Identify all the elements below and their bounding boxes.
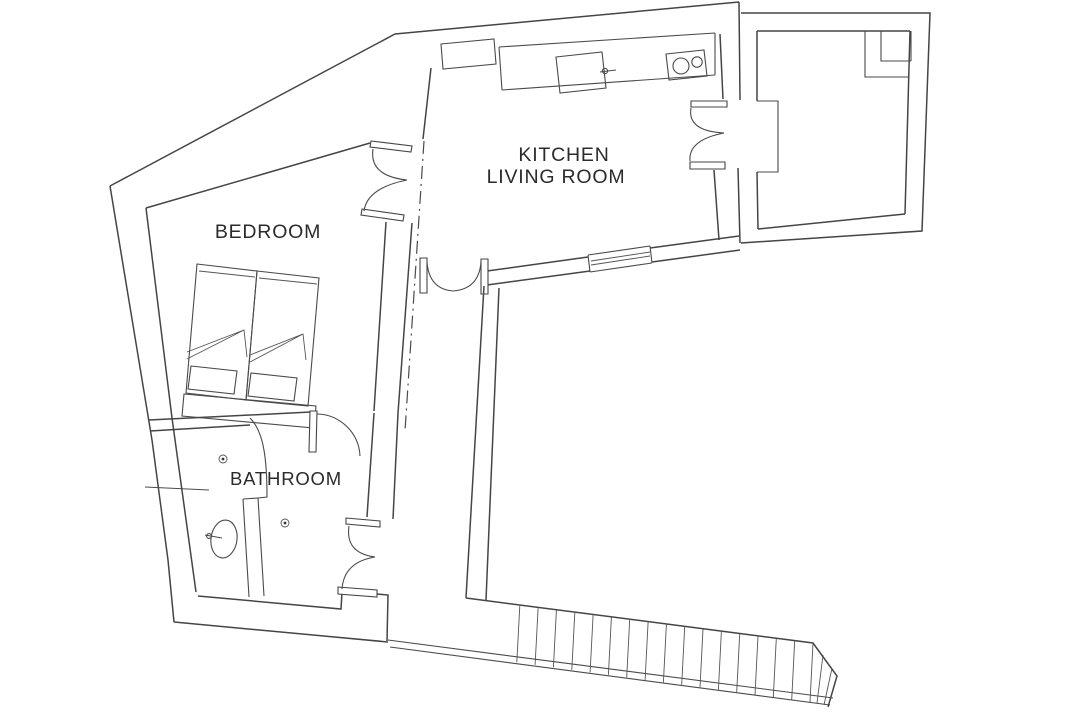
outer-wall-left [110,186,174,622]
stair-treads [517,606,813,703]
stair-tread [682,627,685,685]
bathroom-label: BATHROOM [230,468,342,489]
stair-tread [792,641,795,700]
bedroom-inner-top-wall [146,143,370,208]
door-jamb [691,101,727,107]
bathroom [145,411,398,641]
stair-tread [572,613,575,670]
folded-blanket-right [250,334,306,362]
double-door-kitchen-terrace [690,101,727,169]
terrace-wall-pilaster [757,101,778,172]
stair-tread [517,606,520,663]
kitchen-counter [499,33,715,90]
shower-shelf-line [145,487,209,490]
kitchen-label-line1: KITCHEN [518,144,609,166]
outer-walls [110,2,930,642]
kitchen-sink [556,52,616,93]
headboard-bench [182,394,316,428]
outer-wall-bottom-left [174,622,388,642]
stair-tread [737,634,740,693]
door-jamb [338,587,377,597]
door-swing-arcs [690,108,724,161]
kitchen-outer-right-wall-upper [739,2,740,100]
terrace-outer-walls [741,13,930,243]
floor-drain-2 [281,519,289,527]
door-jamb [309,411,317,452]
stair-tread [810,643,813,702]
folded-blanket-left [187,330,247,359]
bedroom-label: BEDROOM [215,221,321,243]
stair-tread [608,617,611,674]
stair-tread [718,631,721,689]
stair-tread [627,620,630,678]
living-room-bottom-wall-inner [487,250,740,285]
door-swing-arcs [364,149,407,211]
single-door-bathroom [309,411,360,456]
kitchen-label-line2: LIVING ROOM [487,166,626,188]
bedroom-right-wall [374,222,412,413]
stairs-top-edge [466,598,837,707]
bathroom-right-wall [367,413,398,519]
double-door-bathroom-exit [338,518,380,597]
stair-tread [645,622,648,680]
double-door-hall [420,258,488,294]
bathroom-bottom-inner-wall [198,592,342,609]
walkway-edge-inner [390,647,830,705]
door-swing-arcs [427,262,481,291]
kitchen-right-inner-wall-upper [720,34,723,99]
floor-plan-drawing: KITCHEN LIVING ROOM BEDROOM BATHROOM [0,0,1080,720]
bathroom-corner-wall [377,594,388,641]
kitchen-outer-right-wall-lower [738,168,740,243]
floor-drain-1 [219,455,227,463]
door-jamb [690,162,725,169]
door-swing-arc [317,414,360,456]
window [588,246,652,272]
staircase-area [388,286,837,707]
kitchen-right-inner-wall-lower [714,170,719,240]
stair-tread [700,629,703,687]
burner-small [692,57,702,67]
door-jamb [420,258,427,293]
outer-wall-top-left [110,2,739,186]
stair-tread [773,638,776,697]
double-door-bedroom-kitchen [361,141,412,221]
stair-tread [590,615,593,672]
pillow-right [248,373,297,401]
corridor-right-wall [466,286,499,600]
single-bed-left [186,264,257,400]
wash-basin [205,518,240,559]
stair-tread [755,636,758,695]
floor-plan-page: KITCHEN LIVING ROOM BEDROOM BATHROOM [0,0,1080,720]
burner-large [673,58,689,74]
door-swing-arcs [342,526,375,589]
terrace-inner-right-wall [905,31,910,214]
basin-partition-wall [243,498,264,597]
stair-tread [663,624,666,682]
door-jamb [370,141,412,152]
stair-tread [553,611,556,668]
kitchen-left-wall [423,68,431,139]
wall-cupboard [441,39,496,69]
door-jamb [361,209,404,221]
terrace-inner-left-wall [757,31,758,229]
bedroom-inner-left-wall [146,208,196,592]
terrace-room [757,31,911,229]
walkway-edge-outer [388,640,833,698]
door-jamb [346,518,380,527]
terrace-corner-niche [865,31,911,77]
living-room-bottom-wall-outer [487,236,739,271]
terrace-inner-bottom-wall [758,214,905,229]
pillow-left [188,366,237,394]
stair-tread [535,608,538,665]
single-bed-right [246,271,319,406]
